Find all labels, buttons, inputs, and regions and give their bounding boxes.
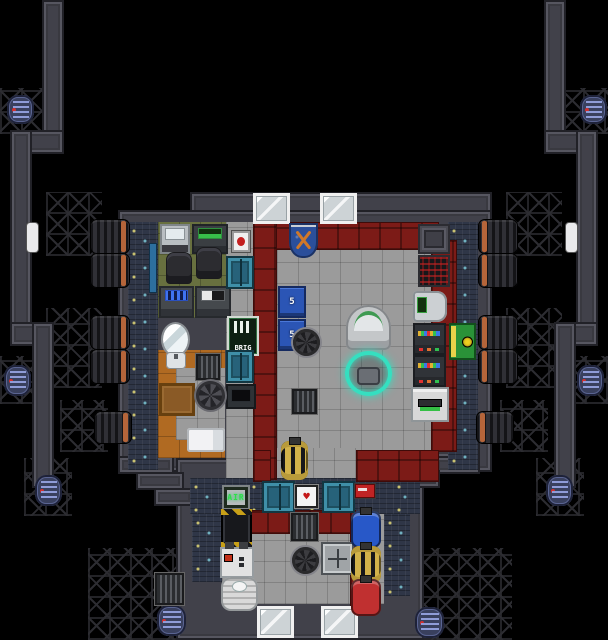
wall-bolted-plate [418, 224, 450, 254]
camera-monitor-console[interactable] [160, 224, 190, 254]
portable-pump[interactable] [220, 547, 254, 578]
helm-console-chair[interactable] [413, 291, 447, 322]
cell-window-grille [196, 354, 220, 380]
wall-flag [289, 223, 318, 258]
defib-mount[interactable] [295, 485, 318, 508]
flow-control-box[interactable] [321, 542, 354, 575]
brig-wall-south-right [356, 450, 439, 482]
window-south-1 [257, 606, 294, 638]
engine-left-3 [90, 315, 130, 350]
window-north-2 [320, 193, 357, 224]
cyborg-dock[interactable] [345, 351, 392, 396]
plating-south-east [384, 514, 410, 596]
security-locker-1[interactable]: 5 [278, 286, 306, 318]
comms-server-2[interactable] [413, 355, 446, 387]
engine-left-5 [94, 411, 132, 444]
satellite-top-right [580, 95, 607, 124]
office-intercom[interactable] [232, 231, 250, 252]
satellite-bottom-right [415, 607, 444, 638]
prisoner-console[interactable] [226, 384, 256, 409]
airlock-cell-corridor[interactable] [226, 350, 254, 383]
arm-right-low [554, 322, 576, 488]
cell-wood-table[interactable] [159, 383, 195, 416]
atmos-grille [291, 513, 318, 541]
canister-red[interactable] [351, 579, 381, 616]
satellite-mid-left [4, 365, 31, 396]
satellite-arm-left [35, 475, 62, 506]
office-wall-pipe [149, 243, 157, 293]
engine-right-4 [478, 349, 518, 384]
engine-right-2 [478, 253, 518, 288]
heat-vent-machine [418, 255, 450, 287]
cell-fan-vent [196, 381, 225, 410]
brig-sign: BRIG [229, 318, 257, 354]
satellite-arm-right [546, 475, 573, 506]
plating-south-west [192, 514, 222, 582]
radiation-closet[interactable] [449, 323, 476, 360]
office-chair-2[interactable] [197, 248, 221, 278]
recharge-station[interactable] [346, 305, 391, 350]
airlock-brig-east[interactable] [322, 481, 355, 513]
airlock-office[interactable] [226, 256, 254, 289]
debris-right [566, 223, 577, 252]
fax-machine[interactable] [411, 387, 449, 422]
south-intercom[interactable] [355, 484, 375, 498]
air-dispenser[interactable]: AIR [222, 485, 250, 510]
office-chair-1[interactable] [167, 253, 191, 283]
engine-left-1 [90, 219, 130, 254]
records-console[interactable] [159, 286, 194, 318]
floor-drain-main [293, 329, 320, 356]
satellite-top-left [7, 95, 34, 124]
arm-right-mid [576, 130, 598, 346]
cell-mirror [163, 324, 188, 355]
floor-vent-main [292, 389, 317, 414]
comms-server-1[interactable] [413, 323, 446, 355]
satellite-mid-right [577, 365, 604, 396]
satellite-bottom-left [157, 605, 186, 636]
engine-right-3 [478, 315, 518, 350]
space-heater[interactable] [221, 577, 258, 611]
cell-bed[interactable] [187, 428, 225, 452]
canister-tuned-brig[interactable] [281, 441, 308, 480]
debris-left [27, 223, 38, 252]
brig-wall-south-left [253, 450, 271, 482]
engine-right-5 [476, 411, 514, 444]
brig-wall-north [253, 222, 439, 250]
hull-sw-step3 [154, 488, 194, 506]
airlock-brig-west[interactable] [262, 481, 295, 513]
arm-left-low [32, 322, 54, 488]
id-console[interactable] [195, 286, 231, 318]
cell-sink[interactable] [166, 352, 186, 369]
atmos-drain [292, 547, 319, 574]
game-map: BRIG55AIR [0, 0, 608, 640]
engine-left-4 [90, 349, 130, 384]
engine-left-2 [90, 253, 130, 288]
space-grille [155, 573, 184, 605]
engine-right-1 [478, 219, 518, 254]
window-north-1 [253, 193, 290, 224]
